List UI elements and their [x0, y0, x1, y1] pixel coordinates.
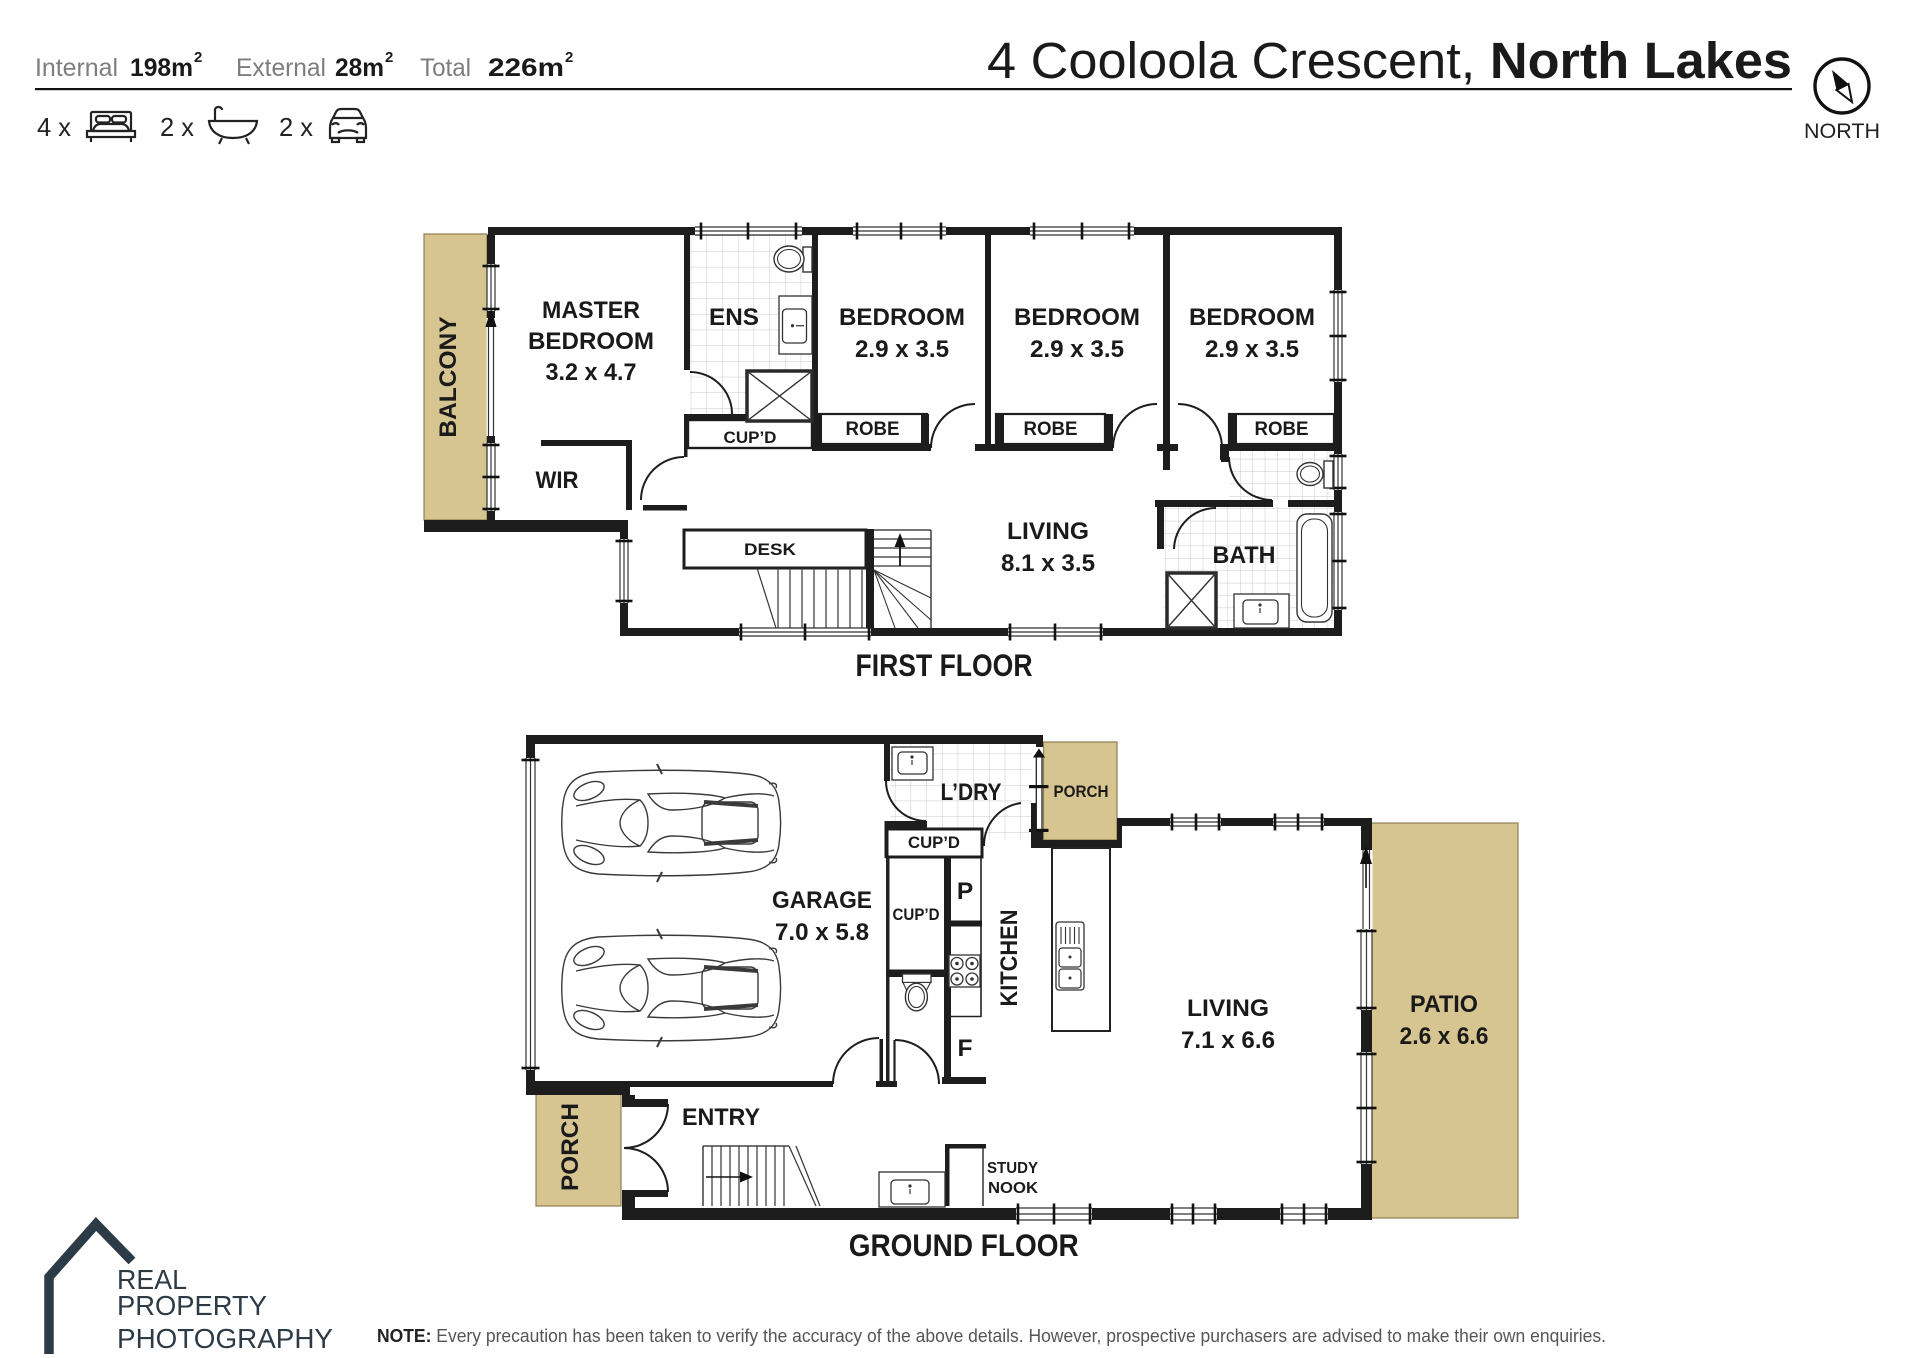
svg-text:L’DRY: L’DRY	[941, 779, 1002, 806]
svg-text:Total: Total	[420, 54, 471, 82]
svg-text:BALCONY: BALCONY	[435, 316, 462, 437]
svg-text:NOTE: Every precaution has bee: NOTE: Every precaution has been taken to…	[377, 1325, 1606, 1346]
svg-text:2.9 x 3.5: 2.9 x 3.5	[1030, 336, 1124, 363]
svg-text:CUP’D: CUP’D	[893, 905, 940, 924]
svg-text:DESK: DESK	[744, 540, 797, 559]
svg-text:ROBE: ROBE	[846, 419, 900, 440]
svg-text:2: 2	[385, 49, 393, 66]
svg-text:LIVING: LIVING	[1187, 995, 1269, 1022]
svg-text:4 x: 4 x	[37, 112, 71, 142]
svg-text:2 x: 2 x	[160, 112, 194, 142]
svg-text:LIVING: LIVING	[1007, 518, 1089, 545]
svg-text:KITCHEN: KITCHEN	[996, 910, 1023, 1007]
svg-text:198m: 198m	[130, 54, 193, 82]
svg-text:28m: 28m	[335, 54, 384, 82]
svg-text:FIRST FLOOR: FIRST FLOOR	[856, 647, 1033, 683]
svg-text:ENTRY: ENTRY	[682, 1104, 760, 1131]
svg-text:GARAGE: GARAGE	[772, 887, 872, 914]
svg-text:PATIO: PATIO	[1410, 991, 1478, 1018]
svg-text:BATH: BATH	[1213, 542, 1276, 569]
svg-text:NOOK: NOOK	[988, 1180, 1039, 1197]
svg-text:2.9 x 3.5: 2.9 x 3.5	[1205, 336, 1299, 363]
svg-text:ROBE: ROBE	[1024, 419, 1078, 440]
svg-text:STUDY: STUDY	[987, 1160, 1039, 1177]
svg-text:BEDROOM: BEDROOM	[839, 304, 965, 331]
svg-text:CUP’D: CUP’D	[908, 833, 960, 852]
svg-text:P: P	[957, 878, 973, 905]
svg-text:WIR: WIR	[536, 467, 579, 494]
svg-text:2 x: 2 x	[279, 112, 313, 142]
svg-text:2: 2	[565, 49, 573, 66]
svg-text:2: 2	[194, 49, 202, 66]
svg-text:226m: 226m	[488, 54, 564, 82]
svg-text:PHOTOGRAPHY: PHOTOGRAPHY	[117, 1323, 333, 1354]
svg-text:7.1 x 6.6: 7.1 x 6.6	[1181, 1027, 1275, 1054]
svg-text:8.1 x 3.5: 8.1 x 3.5	[1001, 550, 1095, 577]
svg-text:GROUND FLOOR: GROUND FLOOR	[849, 1227, 1079, 1263]
svg-text:ROBE: ROBE	[1255, 419, 1309, 440]
svg-text:BEDROOM: BEDROOM	[1189, 304, 1315, 331]
svg-text:3.2 x 4.7: 3.2 x 4.7	[546, 359, 637, 386]
svg-text:2.9 x 3.5: 2.9 x 3.5	[855, 336, 949, 363]
svg-text:4 Cooloola Crescent, North Lak: 4 Cooloola Crescent, North Lakes	[987, 32, 1792, 89]
svg-text:BEDROOM: BEDROOM	[1014, 304, 1140, 331]
svg-text:NORTH: NORTH	[1804, 120, 1880, 143]
svg-text:ENS: ENS	[709, 304, 759, 331]
svg-text:CUP’D: CUP’D	[724, 428, 777, 447]
svg-text:BEDROOM: BEDROOM	[528, 328, 654, 355]
svg-text:PROPERTY: PROPERTY	[117, 1290, 267, 1321]
svg-text:PORCH: PORCH	[1054, 782, 1109, 801]
svg-text:2.6 x 6.6: 2.6 x 6.6	[1400, 1023, 1489, 1050]
svg-text:PORCH: PORCH	[557, 1103, 584, 1191]
svg-text:F: F	[958, 1035, 973, 1062]
svg-text:Internal: Internal	[35, 54, 118, 82]
svg-text:7.0 x 5.8: 7.0 x 5.8	[775, 919, 869, 946]
svg-text:MASTER: MASTER	[542, 297, 640, 324]
svg-text:External: External	[236, 54, 326, 82]
